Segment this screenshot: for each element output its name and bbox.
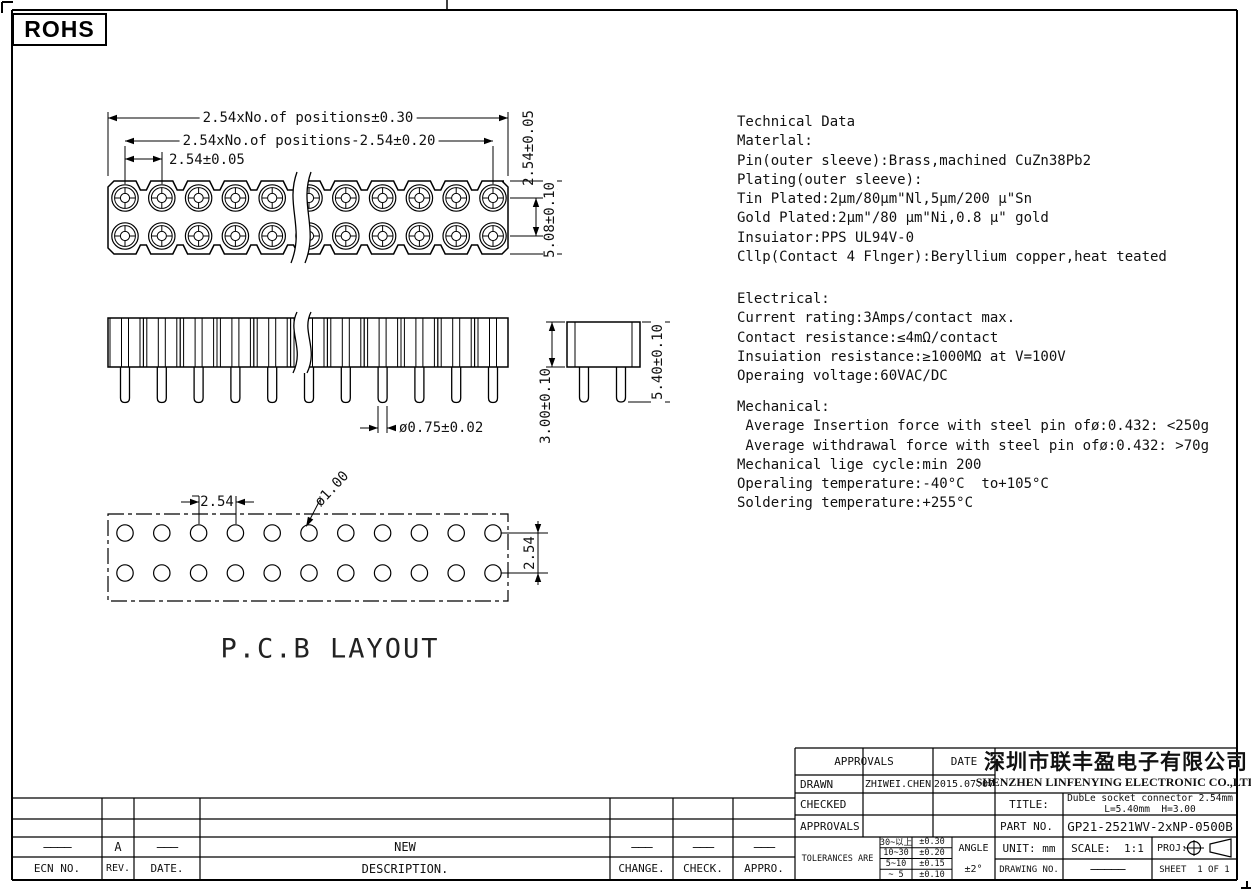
company-name-en: SHENZHEN LINFENYING ELECTRONIC CO.,LTD [995,772,1237,793]
text-line: Gold Plated:2μm"/80 μm"Ni,0.8 μ" gold [737,209,1167,228]
title-line2: L=5.40mm H=3.00 [1104,804,1196,815]
approvals-label: APPROVALS [795,815,863,837]
rev-header-description: DESCRIPTION. [200,857,610,880]
technical-data-mechanical: Mechanical: Average Insertion force with… [737,398,1209,514]
text-line: Insuiator:PPS UL94V-0 [737,229,1167,248]
text-line: Plating(outer sleeve): [737,171,1167,190]
rev-entry-check: ——— [673,837,733,857]
text-line: Pin(outer sleeve):Brass,machined CuZn38P… [737,152,1167,171]
text-line: Mechanical: [737,398,1209,417]
approvals-header: APPROVALS [795,748,933,775]
angle-value: ±2° [952,860,995,878]
text-line: Operaling temperature:-40°C to+105°C [737,475,1209,494]
text-line: Materlal: [737,132,1167,151]
text-line: Mechanical lige cycle:min 200 [737,456,1209,475]
text-line: Technical Data [737,113,1167,132]
title-value: DubLe socket connector 2.54mm L=5.40mm H… [1063,793,1237,815]
dim-top-pitch: 2.54±0.05 [169,153,245,167]
tolerance-range-2: 10~30 [880,848,912,859]
title-label: TITLE: [995,793,1063,815]
rev-entry-change: ——— [610,837,673,857]
dim-pcb-row-pitch: 2.54 [523,536,537,570]
dim-pcb-pitch: 2.54 [200,495,234,509]
text-line: Electrical: [737,290,1066,309]
technical-data-material: Technical DataMaterlal:Pin(outer sleeve)… [737,113,1167,267]
rev-header-ecn: ECN NO. [12,857,102,880]
unit-label: UNIT: mm [995,837,1063,859]
dim-pin-diameter: ø0.75±0.02 [399,421,483,435]
technical-data-electrical: Electrical:Current rating:3Amps/contact … [737,290,1066,386]
tolerance-value-2: ±0.20 [912,848,952,859]
tolerance-range-4: ~ 5 [880,869,912,880]
drawn-label: DRAWN [795,775,863,793]
part-no-value: GP21-2521WV-2xNP-0500B [1063,815,1237,837]
dim-top-overall: 2.54xNo.of positions±0.30 [200,111,417,125]
tolerance-value-4: ±0.10 [912,869,952,880]
part-no-label: PART NO. [995,815,1063,837]
scale-label: SCALE: 1:1 [1063,837,1152,859]
tolerance-value-3: ±0.15 [912,859,952,870]
rev-header-date: DATE. [134,857,200,880]
text-line: Contact resistance:≤4mΩ/contact [737,329,1066,348]
drawing-no-label: DRAWING NO. [995,859,1063,880]
drawing-no-value: ————— [1063,859,1152,880]
text-line: Cllp(Contact 4 Flnger):Beryllium copper,… [737,248,1167,267]
text-line: Average withdrawal force with steel pin … [737,437,1209,456]
tolerance-range-1: 30~以上 [880,837,912,848]
sheet-label: SHEET 1 OF 1 [1152,859,1237,880]
rev-entry-date: ——— [134,837,200,857]
rev-header-appro: APPRO. [733,857,795,880]
text-line: Current rating:3Amps/contact max. [737,309,1066,328]
dim-overall-height: 5.40±0.10 [651,321,665,403]
tolerances-label: TOLERANCES ARE [795,837,880,880]
dim-top-body-width: 5.08±0.10 [543,179,557,261]
text-line: Soldering temperature:+255°C [737,494,1209,513]
text-line: Insuiation resistance:≥1000MΩ at V=100V [737,348,1066,367]
rev-entry-rev: A [102,837,134,857]
dim-top-span: 2.54xNo.of positions-2.54±0.20 [180,134,439,148]
dim-top-row-pitch: 2.54±0.05 [522,110,536,186]
text-line: Tin Plated:2μm/80μm"Nl,5μm/200 μ"Sn [737,190,1167,209]
tolerance-range-3: 5~10 [880,859,912,870]
text-line: Average Insertion force with steel pin o… [737,417,1209,436]
angle-label: ANGLE [952,839,995,857]
rev-header-check: CHECK. [673,857,733,880]
rev-header-change: CHANGE. [610,857,673,880]
checked-label: CHECKED [795,793,863,815]
pcb-layout-title: P.C.B LAYOUT [220,634,439,665]
dim-body-height: 3.00±0.10 [539,368,553,444]
drawn-name: ZHIWEI.CHEN [863,775,933,793]
projection-label: PROJ: [1152,837,1190,859]
rev-header-rev: REV. [102,857,134,880]
drawing-sheet: ROHS Technical DataMaterlal:Pin(outer sl… [0,0,1251,892]
tolerance-value-1: ±0.30 [912,837,952,848]
company-name-cn: 深圳市联丰盈电子有限公司 [995,748,1237,774]
title-line1: DubLe socket connector 2.54mm [1067,793,1233,804]
rev-entry-appro: ——— [733,837,795,857]
rev-entry-ecn: ———— [12,837,102,857]
text-line: Operaing voltage:60VAC/DC [737,367,1066,386]
rev-entry-description: NEW [200,837,610,857]
rohs-badge: ROHS [12,13,107,46]
